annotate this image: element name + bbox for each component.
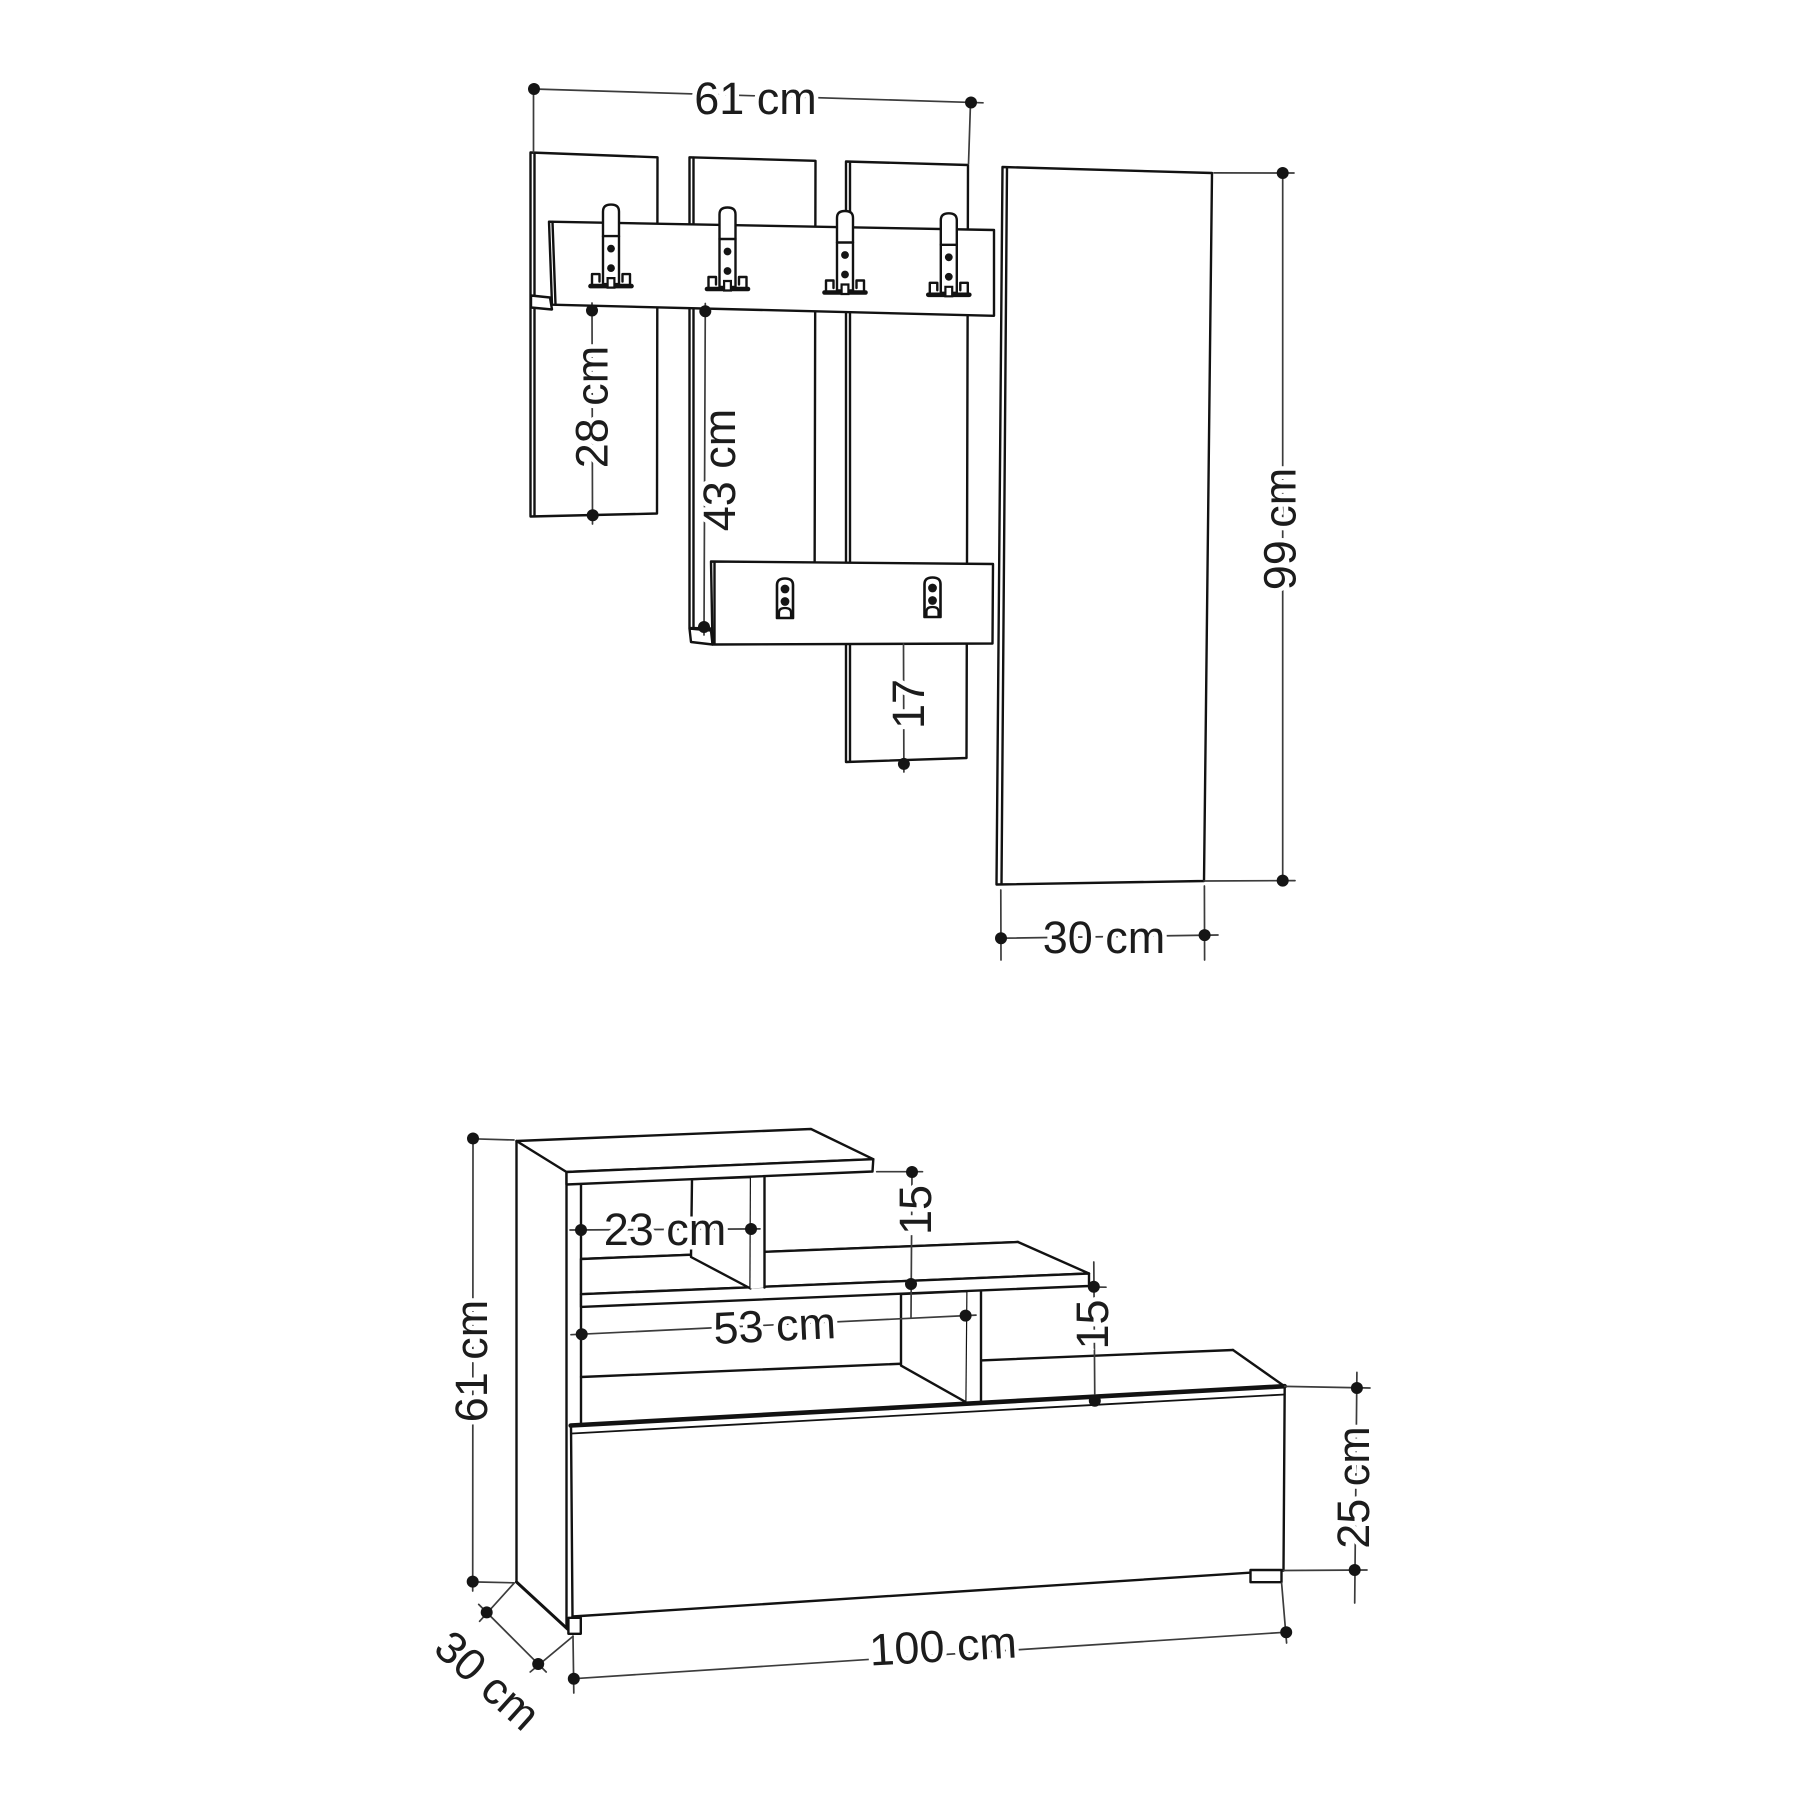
- svg-text:61 cm: 61 cm: [694, 73, 817, 124]
- svg-text:53 cm: 53 cm: [712, 1297, 837, 1354]
- svg-text:61 cm: 61 cm: [446, 1300, 497, 1423]
- svg-text:15: 15: [890, 1185, 941, 1235]
- svg-text:28 cm: 28 cm: [567, 346, 618, 469]
- svg-text:15: 15: [1067, 1299, 1118, 1349]
- svg-text:25 cm: 25 cm: [1328, 1426, 1379, 1549]
- svg-text:99 cm: 99 cm: [1255, 468, 1306, 591]
- svg-text:17: 17: [883, 679, 934, 729]
- svg-text:100 cm: 100 cm: [868, 1616, 1018, 1675]
- svg-text:30 cm: 30 cm: [1043, 912, 1166, 963]
- svg-text:43 cm: 43 cm: [694, 409, 745, 532]
- svg-text:23 cm: 23 cm: [604, 1204, 727, 1255]
